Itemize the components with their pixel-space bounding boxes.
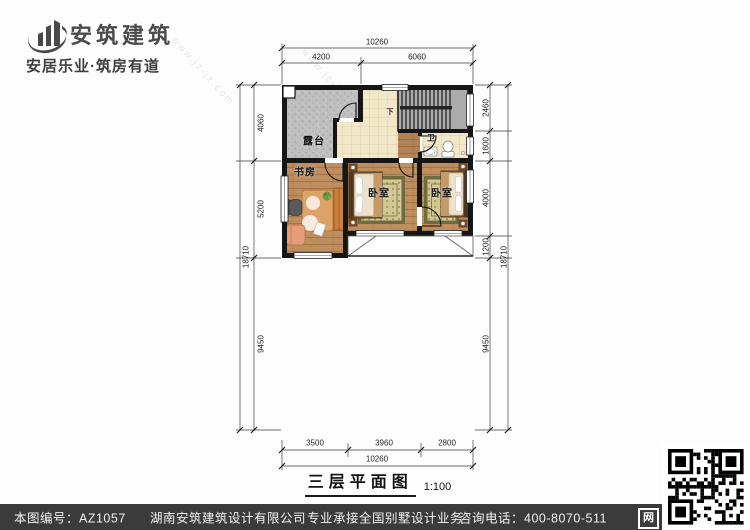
desk-icon <box>302 190 333 236</box>
column-icon <box>283 86 295 98</box>
dim-label: 2800 <box>438 439 456 448</box>
dim-label: 18710 <box>242 246 251 268</box>
room-label-bedroom1: 卧室 <box>368 185 390 200</box>
drawing-scale: 1:100 <box>424 481 452 497</box>
drawing-title: 三层平面图 <box>305 468 416 497</box>
dim-label: 9450 <box>482 335 491 353</box>
web-badge: 网 <box>638 508 659 529</box>
dim-label: 10260 <box>366 455 388 464</box>
drawing-title-row: 三层平面图1:100 <box>288 468 468 497</box>
phone-number: 咨询电话：400-8070-511 <box>459 508 607 527</box>
dim-label: 10260 <box>366 38 388 47</box>
dim-label: 18710 <box>500 246 509 268</box>
dim-label: 3500 <box>306 439 324 448</box>
room-label-bedroom2: 卧室 <box>431 185 453 200</box>
dim-label: 6060 <box>408 53 426 62</box>
stair-direction-label: 下 <box>387 107 394 117</box>
qr-code <box>662 443 750 530</box>
room-label-terrace: 露台 <box>303 133 325 148</box>
dim-label: 1600 <box>482 137 491 155</box>
dim-label: 5200 <box>257 200 266 218</box>
toilet-icon <box>442 141 454 157</box>
eave-canopy <box>348 236 473 256</box>
dim-label: 4200 <box>312 53 330 62</box>
room-label-study: 书房 <box>294 164 316 179</box>
dim-label: 2460 <box>482 99 491 117</box>
dim-label: 9450 <box>257 335 266 353</box>
dim-label: 4060 <box>257 114 266 132</box>
drawing-sheet: 安筑建筑 安居乐业·筑房有道 www.jz-jz.com www.jz-jz.c… <box>0 0 750 530</box>
room-label-bath: 卫 <box>427 133 435 144</box>
corridor-floor-shade <box>398 133 420 158</box>
company-name: 湖南安筑建筑设计有限公司 <box>150 508 306 527</box>
dim-label: 3960 <box>375 439 393 448</box>
staircase-icon <box>398 87 468 131</box>
drawing-number: 本图编号：AZ1057 <box>14 508 126 527</box>
wardrobe-icon <box>334 188 344 230</box>
floor-plan-drawing <box>0 0 750 530</box>
dim-label: 4000 <box>482 189 491 207</box>
dim-label: 1200 <box>482 238 491 256</box>
service-text: 专业承接全国别墅设计业务 <box>307 508 463 527</box>
sofa-icon <box>286 225 305 245</box>
